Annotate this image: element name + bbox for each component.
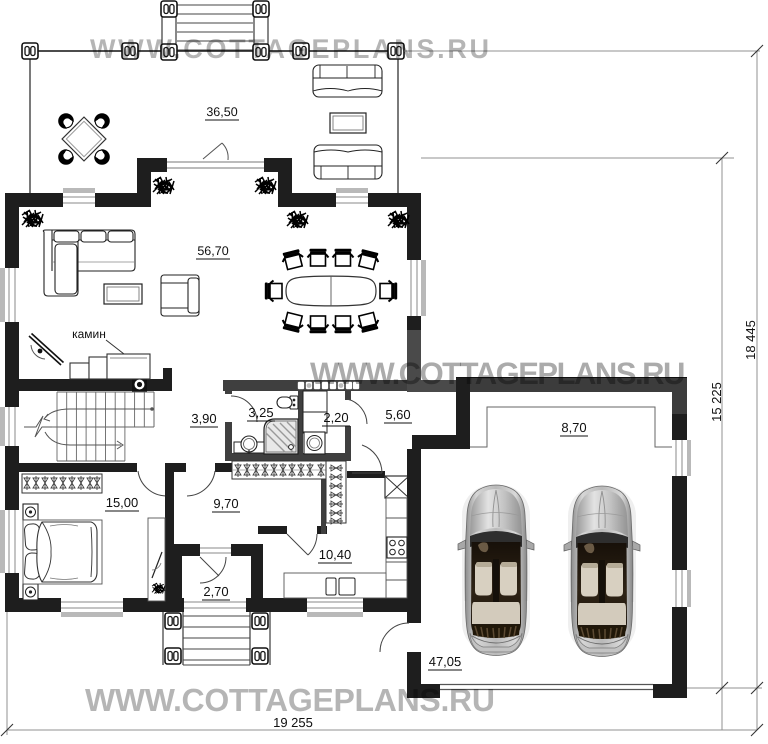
svg-text:15 225: 15 225: [709, 382, 724, 422]
svg-text:камин: камин: [72, 327, 106, 341]
svg-text:WWW.COTTAGEPLANS.RU: WWW.COTTAGEPLANS.RU: [85, 682, 495, 718]
svg-text:10,40: 10,40: [319, 547, 352, 562]
svg-text:47,05: 47,05: [429, 654, 462, 669]
svg-text:2,20: 2,20: [323, 410, 348, 425]
svg-text:15,00: 15,00: [106, 495, 139, 510]
svg-text:WWW.COTTAGEPLANS.RU: WWW.COTTAGEPLANS.RU: [90, 34, 492, 64]
svg-text:5,60: 5,60: [385, 407, 410, 422]
svg-text:3,25: 3,25: [248, 405, 273, 420]
svg-text:WWW.COTTAGEPLANS.RU: WWW.COTTAGEPLANS.RU: [310, 356, 684, 391]
svg-text:9,70: 9,70: [213, 496, 238, 511]
svg-text:56,70: 56,70: [197, 244, 228, 258]
svg-text:36,50: 36,50: [206, 105, 237, 119]
svg-text:2,70: 2,70: [203, 584, 228, 599]
svg-text:8,70: 8,70: [561, 420, 586, 435]
svg-text:3,90: 3,90: [191, 411, 216, 426]
svg-text:18 445: 18 445: [743, 320, 758, 360]
